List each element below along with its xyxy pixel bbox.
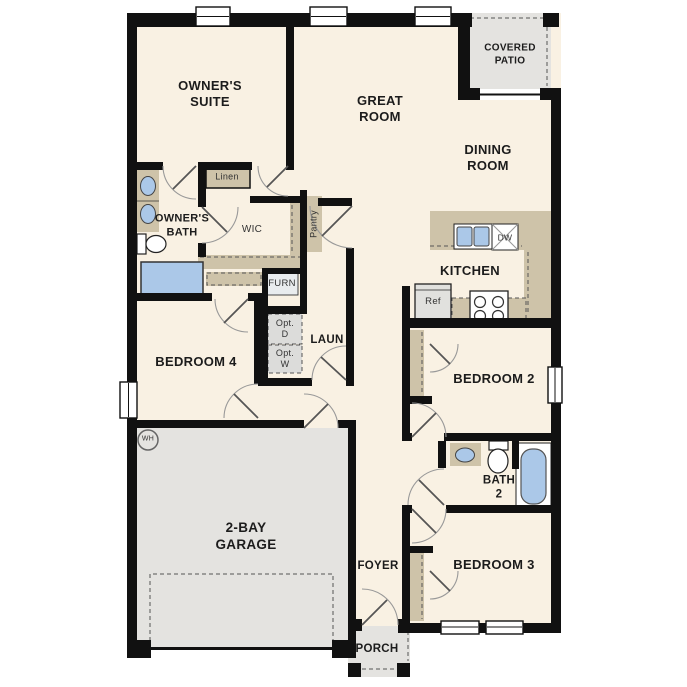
wall-bottom-c [523, 623, 561, 633]
optional-washer-box [268, 345, 302, 373]
wall-patio-bottom-a [458, 88, 480, 100]
wall-left [127, 13, 137, 658]
wall-bedroom2-south [444, 433, 561, 441]
wall-furn-north [262, 268, 307, 274]
furnace-box [266, 273, 298, 295]
bath2-toilet-bowl [488, 449, 508, 473]
wall-bath2-south-a [402, 505, 412, 513]
wall-foyer-south-a [348, 619, 362, 631]
hall-shelf [206, 272, 262, 286]
wall-porch-br [397, 663, 410, 677]
wall-suite-bottom-a [127, 162, 163, 170]
wall-tub-niche [512, 441, 519, 469]
wall-b3-closet-top [402, 546, 433, 553]
bath2-sink [456, 448, 475, 462]
kitchen-sink-basin-2 [474, 227, 489, 246]
kitchen-sink-basin-1 [457, 227, 472, 246]
wall-wic-west-b [198, 243, 206, 257]
refrigerator-box [415, 284, 451, 320]
owners-tub [141, 262, 203, 294]
burner-1 [475, 297, 486, 308]
garage-door-line [151, 647, 332, 650]
wall-foyer-bedroom3 [402, 513, 410, 630]
wall-patio-left [458, 13, 470, 93]
wall-laundry-west [262, 306, 268, 386]
wall-laundry-bottom [258, 378, 312, 386]
patio-floor [464, 13, 551, 90]
wall-suite-bottom-b [198, 162, 252, 170]
wall-wic-west-a [198, 170, 206, 207]
owners-bath-sink-2 [141, 205, 156, 224]
wall-bedroom4-top-a [127, 293, 212, 301]
wall-hall-east [402, 328, 410, 433]
garage-floor [135, 428, 348, 648]
burner-2 [493, 297, 504, 308]
wall-garage-top-a [127, 420, 304, 428]
floor-areas [127, 13, 561, 677]
wall-suite-greatroom [286, 17, 294, 162]
wall-porch-bl [348, 663, 361, 677]
wall-recess-top [318, 198, 352, 206]
wall-pantry-west [300, 190, 307, 308]
wall-bath2-south-b [446, 505, 561, 513]
owners-bath-sink-1 [141, 177, 156, 196]
wall-bedroom2-joint [402, 433, 412, 441]
wall-wic-ne [250, 196, 302, 203]
bath2-tub [521, 449, 546, 504]
floor-plan-canvas: OWNER'S SUITEGREAT ROOMCOVERED PATIODINI… [0, 0, 687, 687]
owners-toilet-tank [137, 234, 146, 254]
wall-bedroom4-top-b [248, 293, 262, 301]
wall-patio-corner [543, 13, 559, 27]
wall-hall-west [346, 248, 354, 386]
wall-garage-bl [127, 640, 151, 658]
wall-kitchen-bottom [402, 318, 561, 328]
wall-bedroom4-east [254, 301, 262, 384]
floor-plan-drawing [0, 0, 687, 687]
wall-bottom-b [479, 623, 486, 633]
wall-bath2-west [438, 441, 446, 468]
water-heater-icon [138, 430, 158, 450]
optional-dryer-box [268, 314, 302, 344]
owners-toilet-bowl [146, 236, 166, 253]
wall-patio-bottom-b [540, 88, 551, 100]
